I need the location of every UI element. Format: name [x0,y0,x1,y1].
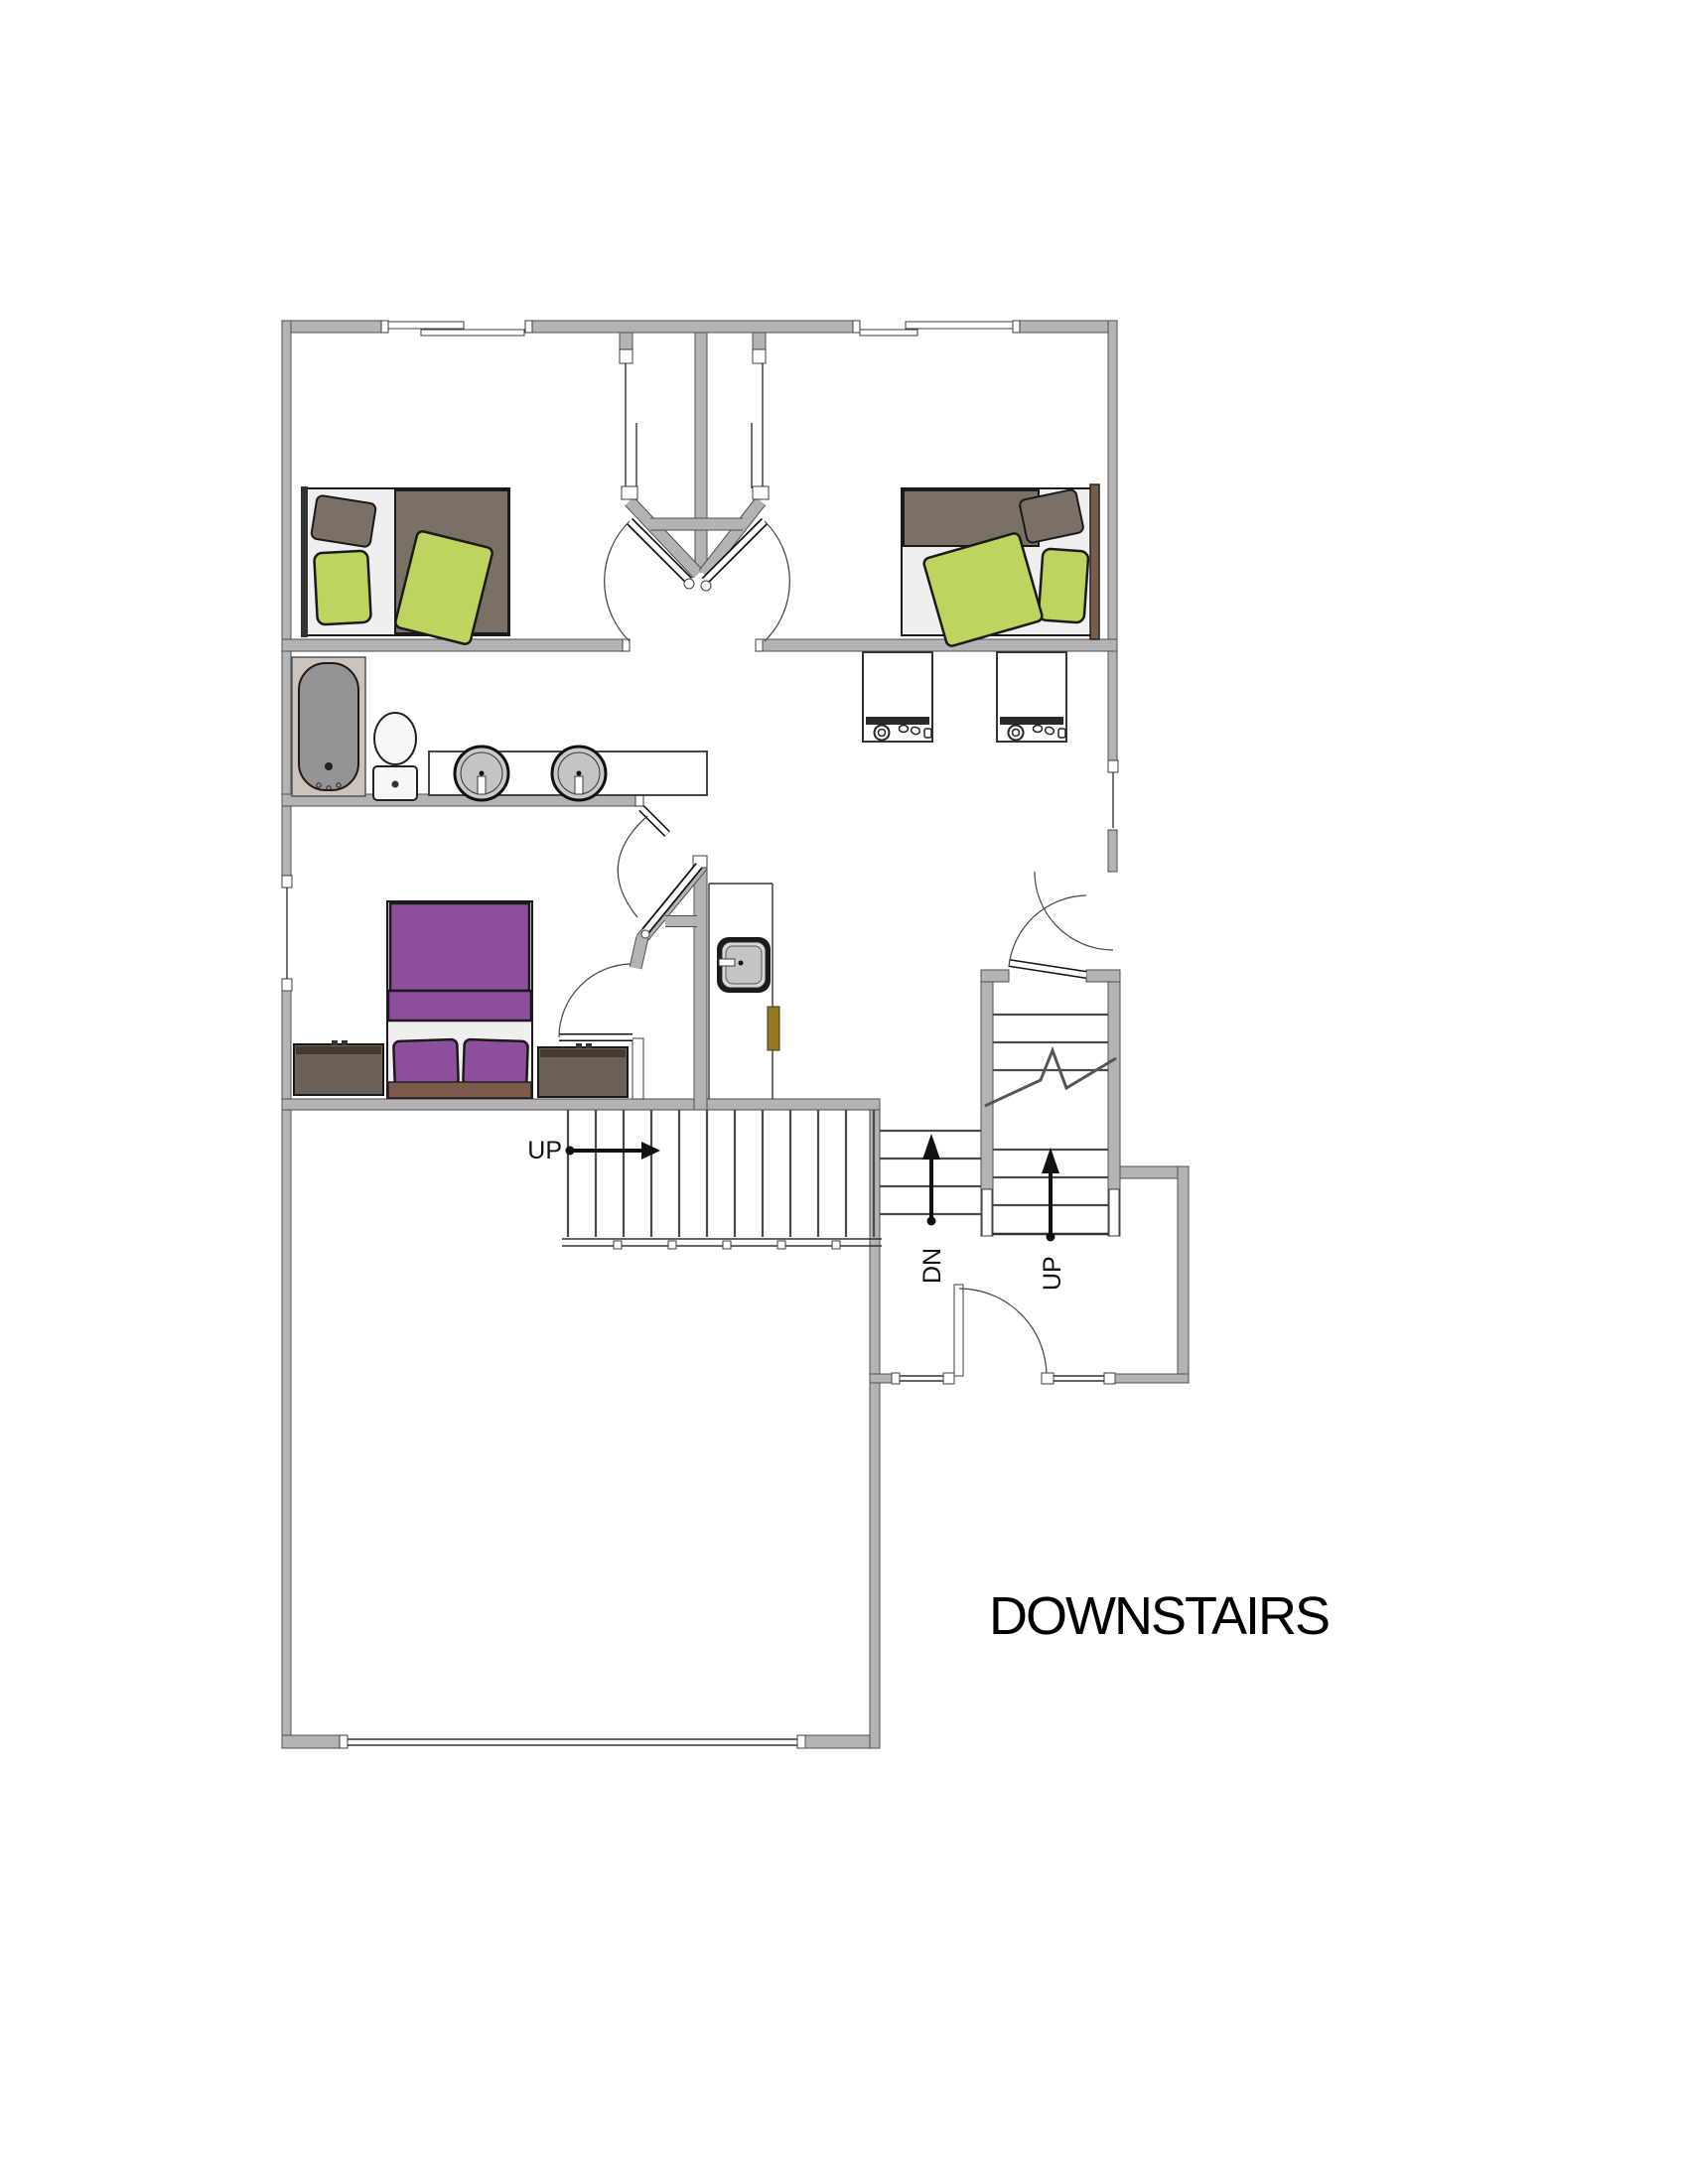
entry-door [954,1285,1047,1376]
bedroom-right-bed [902,484,1099,647]
down-arrow: DN [918,1134,946,1284]
floor-plan: UP UP [0,0,1688,2184]
up-arrow-main: UP [527,1137,660,1164]
utility-sink [717,937,771,993]
pillow-purple-right [463,1039,528,1087]
laundry-exterior-door-arc [1035,872,1113,950]
bedroom-left-bed [301,486,509,645]
bed-headboard [301,486,308,637]
bathroom-door [618,808,667,917]
up-label-main: UP [527,1137,562,1164]
master-bedroom [294,901,643,1099]
wall-right-upper [1108,321,1117,767]
powder-room [709,884,779,1099]
toilet [373,713,417,800]
bed-headboard [388,1082,531,1098]
stair-treads [568,1110,874,1237]
hall-closet [605,333,790,641]
stairs-main: UP [527,1110,882,1249]
wall-top-middle [525,321,860,333]
powder-room-door [768,1007,779,1050]
down-label: DN [918,1248,946,1284]
duvet-purple [390,903,529,991]
up-label-entry: UP [1039,1256,1066,1291]
stairs-down: DN [880,1131,981,1284]
dresser-left [294,1040,383,1095]
wall-top-right [1020,321,1117,333]
pillow-green [314,551,371,625]
pillow-purple-left [393,1039,459,1087]
stairwell-top-door [1009,895,1086,975]
dresser-right [538,1043,628,1097]
closet-center-wall [695,333,707,572]
stairs-up: UP [981,895,1120,1291]
laundry [863,652,1066,742]
wall-bottom-left [282,1735,340,1748]
dryer [997,652,1066,742]
up-arrow-entry: UP [1039,1148,1066,1291]
window-top-right [860,322,1013,336]
break-line [985,1050,1116,1106]
pillow-gray [311,495,376,548]
tub-faucet [325,762,333,770]
pillow-green [1039,548,1089,622]
washer [863,652,932,742]
master-bed [387,901,532,1098]
window-top-left [388,322,524,336]
bathtub [299,663,358,790]
master-closet [635,856,707,1110]
bed-headboard [1090,484,1099,639]
page-title: DOWNSTAIRS [989,1586,1329,1646]
vanity-sinks [429,747,707,800]
wall-bottom-right [805,1735,880,1748]
bathroom [292,657,707,917]
closet-door [641,866,699,938]
wall-top-left [282,321,387,333]
